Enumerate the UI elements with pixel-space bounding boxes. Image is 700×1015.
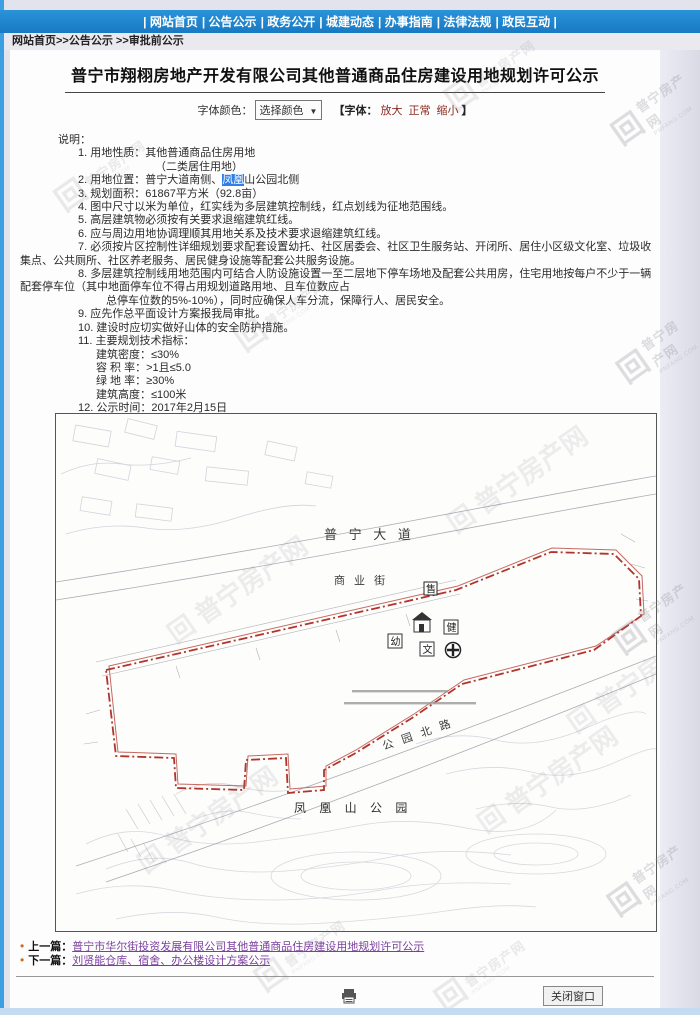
note-line: 总停车位数的5%-10%），同时应确保人车分流，保障行人、居民安全。	[10, 295, 660, 308]
page: 网站首页 公告公示 政务公开 城建动态 办事指南 法律法规 政民互动 网站首页>…	[0, 0, 700, 1015]
health-icon: 健	[447, 622, 457, 634]
page-title: 普宁市翔栩房地产开发有限公司其他普通商品住房建设用地规划许可公示	[28, 62, 642, 86]
font-size-links: 【字体：放大正常缩小】	[333, 105, 472, 117]
svg-text:回 普宁房产网: 回 普宁房产网	[162, 531, 313, 649]
kindergarten-icon: 幼	[391, 635, 401, 648]
note-line: （二类居住用地）	[10, 161, 660, 174]
site-plan-svg: 幼 文 健 售	[56, 414, 656, 931]
label-puning-avenue: 普 宁 大 道	[324, 527, 415, 542]
bottom-strip	[0, 1008, 700, 1015]
nav-item-home[interactable]: 网站首页	[143, 13, 198, 30]
svg-text:回 普宁房产网: 回 普宁房产网	[442, 421, 593, 539]
svg-text:回 普宁房产网: 回 普宁房产网	[472, 721, 623, 839]
right-margin	[660, 50, 700, 1015]
nav-item-announcements[interactable]: 公告公示	[202, 13, 257, 30]
label-park-north-road: 公 园 北 路	[381, 716, 455, 752]
note-line: 绿 地 率：≥30%	[10, 375, 660, 388]
notes-heading: 说明：	[10, 134, 660, 147]
bullet-icon: •	[20, 953, 24, 967]
culture-icon: 文	[423, 643, 433, 656]
left-border-strip	[0, 0, 4, 1015]
print-icon[interactable]	[340, 988, 358, 1004]
facility-icons: 幼 文 健 售	[388, 582, 461, 658]
footer-divider	[16, 976, 654, 977]
breadcrumb[interactable]: 网站首页>>公告公示 >>审批前公示	[4, 33, 700, 50]
close-window-button[interactable]: 关闭窗口	[543, 986, 603, 1006]
shop-icon: 售	[426, 583, 436, 596]
font-controls: 字体颜色：选择颜色▼ 【字体：放大正常缩小】	[10, 100, 660, 120]
selected-text: 凤凰	[222, 174, 244, 186]
font-enlarge-link[interactable]: 放大	[380, 105, 402, 117]
nav-item-urban-news[interactable]: 城建动态	[319, 13, 374, 30]
font-color-label: 字体颜色：	[198, 105, 253, 117]
note-line: 8. 多层建筑控制线用地范围内可结合人防设施设置一至二层地下停车场地及配套公共用…	[10, 268, 660, 295]
note-line: 6. 应与周边用地协调理顺其用地关系及技术要求退缩建筑红线。	[10, 228, 660, 241]
hospital-cross-icon	[446, 643, 461, 658]
small-annotation-text	[344, 690, 476, 704]
bullet-icon: •	[20, 939, 24, 953]
site-plan-map: 幼 文 健 售	[55, 413, 657, 932]
next-label: 下一篇：	[28, 955, 72, 967]
label-phoenix-park: 凤 凰 山 公 园	[294, 801, 412, 815]
note-line: 10. 建设时应切实做好山体的安全防护措施。	[10, 322, 660, 335]
note-line-location: 2. 用地位置：普宁大道南侧、凤凰山公园北侧	[10, 174, 660, 187]
svg-text:回 普宁房产网: 回 普宁房产网	[132, 761, 283, 879]
note-line: 9. 应先作总平面设计方案报我局审批。	[10, 308, 660, 321]
label-business-street: 商 业 街	[334, 573, 388, 587]
top-nav: 网站首页 公告公示 政务公开 城建动态 办事指南 法律法规 政民互动	[0, 10, 700, 33]
title-divider	[65, 92, 605, 93]
nav-item-laws[interactable]: 法律法规	[437, 13, 492, 30]
nav-item-service-guide[interactable]: 办事指南	[378, 13, 433, 30]
note-line: 11. 主要规划技术指标：	[10, 335, 660, 348]
note-line: 容 积 率：>1且≤5.0	[10, 362, 660, 375]
note-line: 7. 必须按片区控制性详细规划要求配套设置幼托、社区居委会、社区卫生服务站、开闭…	[10, 241, 660, 268]
notes-list: 说明： 1. 用地性质：其他普通商品住房用地 （二类居住用地） 2. 用地位置：…	[10, 134, 660, 430]
note-line: 4. 图中尺寸以米为单位，红实线为多层建筑控制线，红点划线为征地范围线。	[10, 201, 660, 214]
next-post-row: •下一篇：刘贤能仓库、宿舍、办公楼设计方案公示	[20, 952, 270, 968]
note-line: 3. 规划面积：61867平方米（92.8亩）	[10, 188, 660, 201]
font-shrink-link[interactable]: 缩小	[436, 105, 458, 117]
chevron-down-icon: ▼	[310, 107, 318, 116]
content-panel: 普宁市翔栩房地产开发有限公司其他普通商品住房建设用地规划许可公示 字体颜色：选择…	[10, 50, 660, 1008]
note-line: 建筑密度：≤30%	[10, 349, 660, 362]
font-color-select[interactable]: 选择颜色▼	[255, 100, 323, 120]
note-line: 建筑高度：≤100米	[10, 389, 660, 402]
font-normal-link[interactable]: 正常	[408, 105, 430, 117]
next-post-link[interactable]: 刘贤能仓库、宿舍、办公楼设计方案公示	[72, 955, 270, 967]
note-line: 5. 高层建筑物必须按有关要求退缩建筑红线。	[10, 214, 660, 227]
culture-house-icon	[412, 612, 432, 632]
nav-item-gov-affairs[interactable]: 政务公开	[261, 13, 316, 30]
note-line: 1. 用地性质：其他普通商品住房用地	[10, 147, 660, 160]
nav-item-interaction[interactable]: 政民互动	[495, 13, 556, 30]
city-blocks	[61, 419, 333, 534]
